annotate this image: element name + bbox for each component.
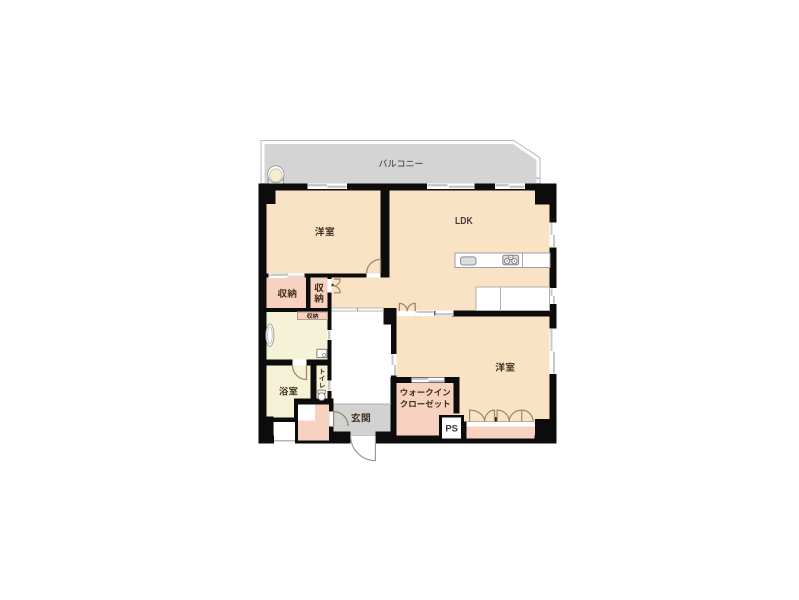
svg-text:LDK: LDK: [455, 215, 473, 227]
svg-text:PS: PS: [445, 423, 458, 434]
